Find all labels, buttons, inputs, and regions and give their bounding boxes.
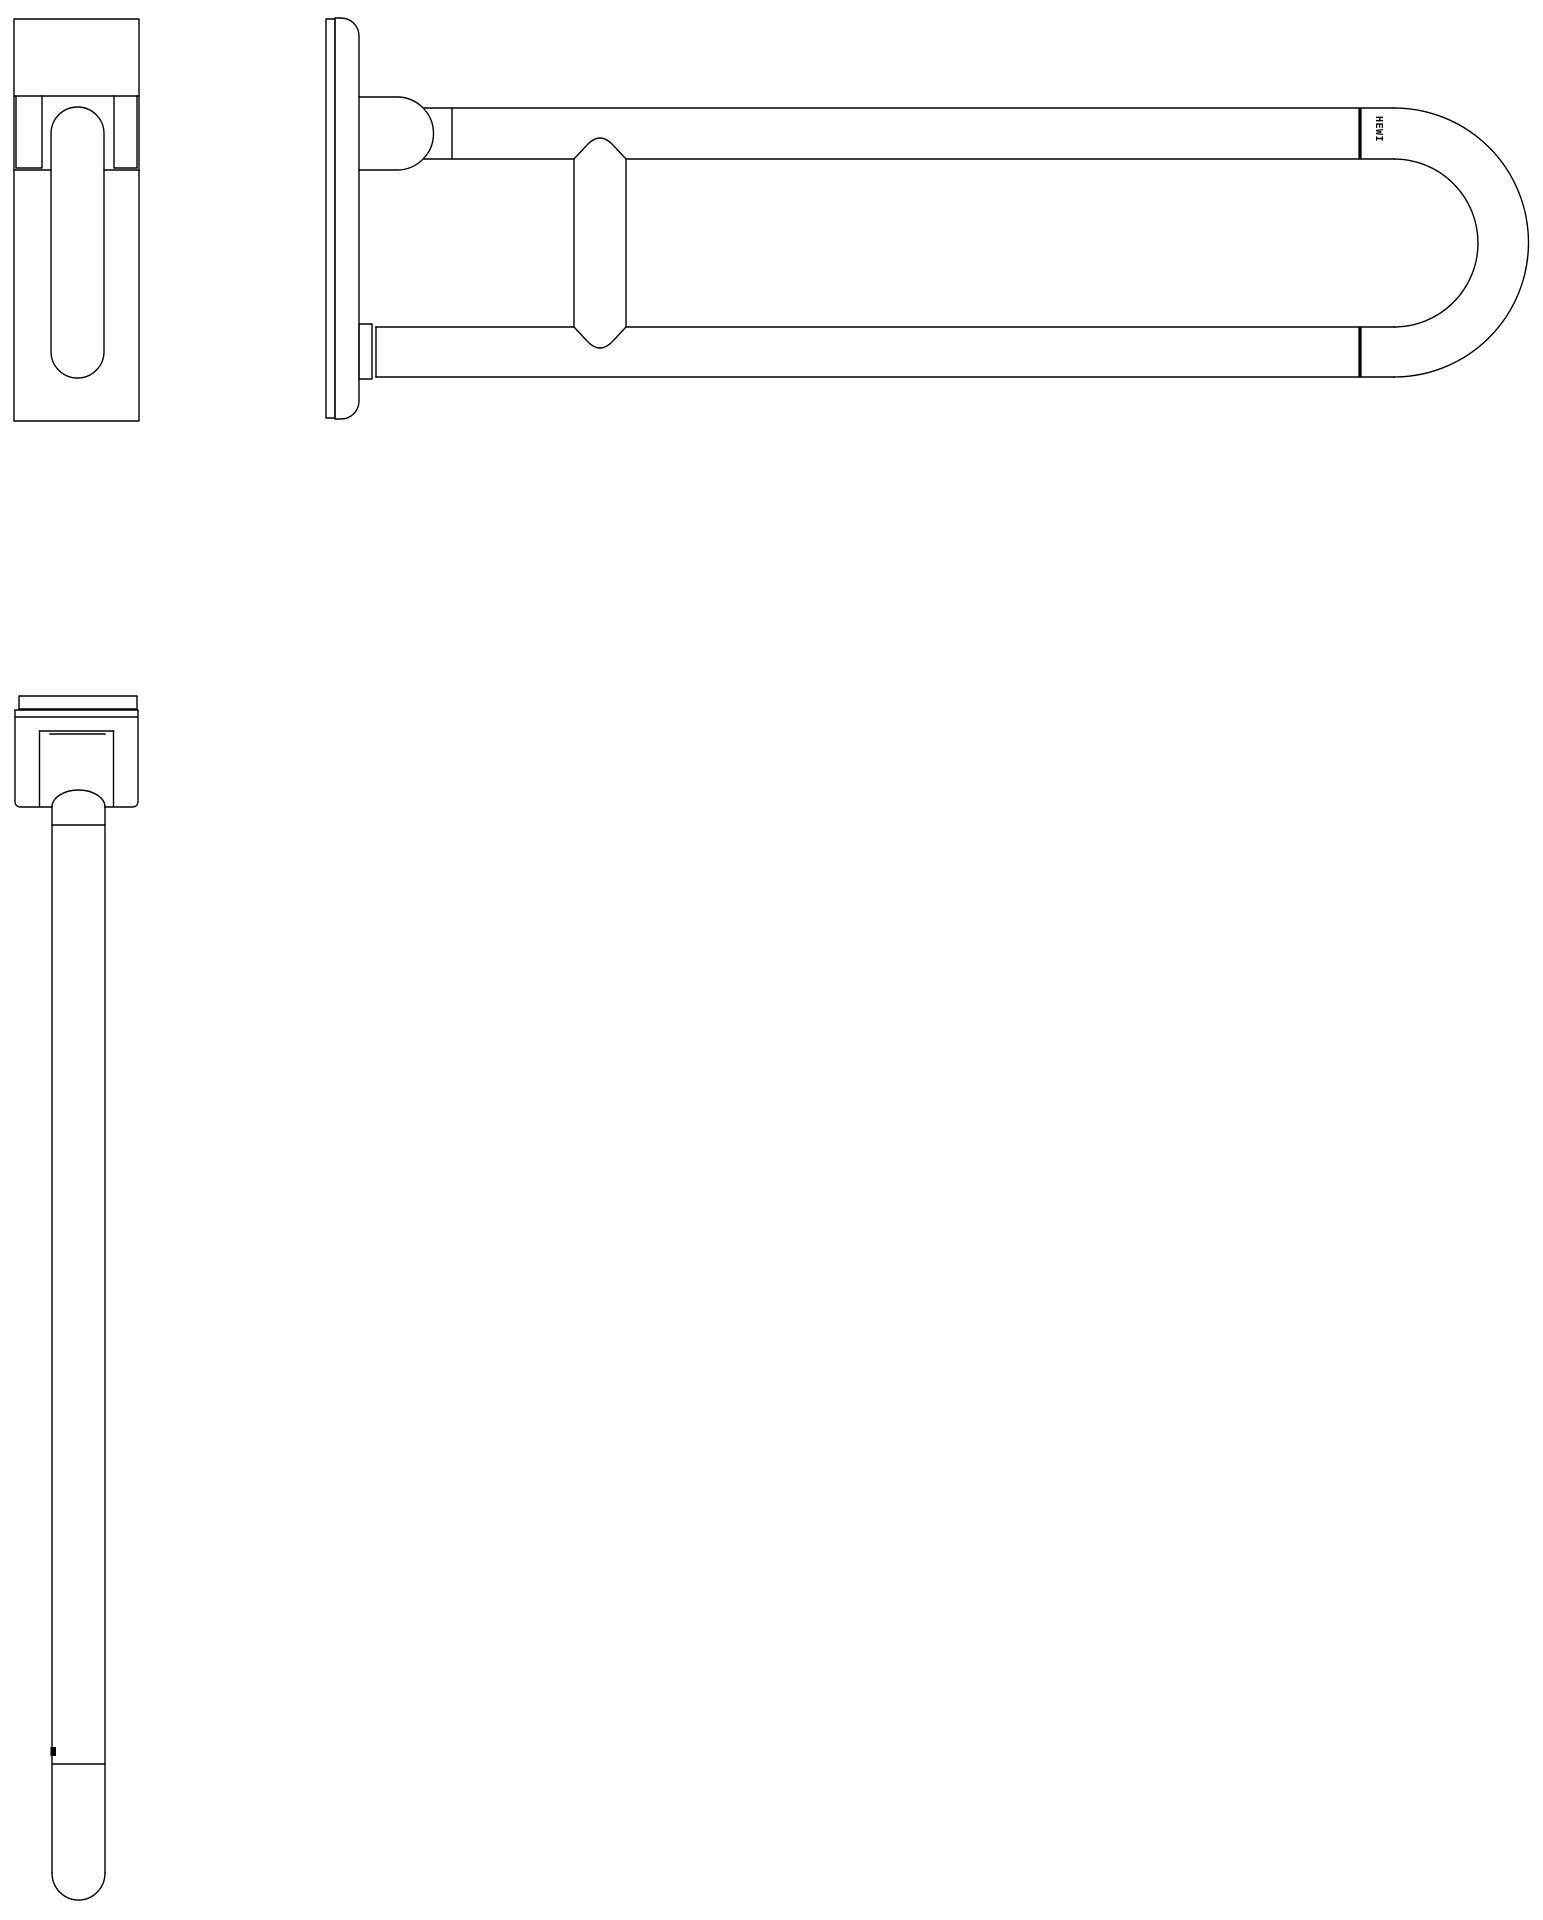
folded-view-rail [15, 696, 138, 1900]
hewi-logo-mark [51, 1747, 57, 1756]
release-endcap [359, 324, 372, 379]
folded-bracket-body [15, 710, 138, 807]
front-view-bracket [14, 19, 139, 421]
bracket-right-hinge-block [114, 96, 137, 168]
u-bend-inner-arc [1394, 159, 1478, 327]
folded-wall-plate-top [19, 696, 137, 709]
wall-plate-back [326, 19, 335, 418]
folded-tube-bottom-cap [52, 1873, 105, 1900]
mounting-hub [359, 97, 433, 170]
bracket-outer-body [14, 19, 139, 421]
folded-tube-dome [52, 790, 105, 807]
wall-plate-front [335, 18, 359, 419]
technical-drawing-canvas: HEWI [0, 0, 1543, 1920]
side-view-rail: HEWI [326, 18, 1529, 419]
brand-logo-text: HEWI [1373, 116, 1384, 142]
drawing-svg: HEWI [0, 0, 1543, 1920]
joint-strut [574, 138, 626, 348]
bracket-slot [51, 107, 104, 378]
u-bend-outer-arc [1394, 108, 1529, 377]
bracket-left-hinge-block [16, 96, 42, 168]
